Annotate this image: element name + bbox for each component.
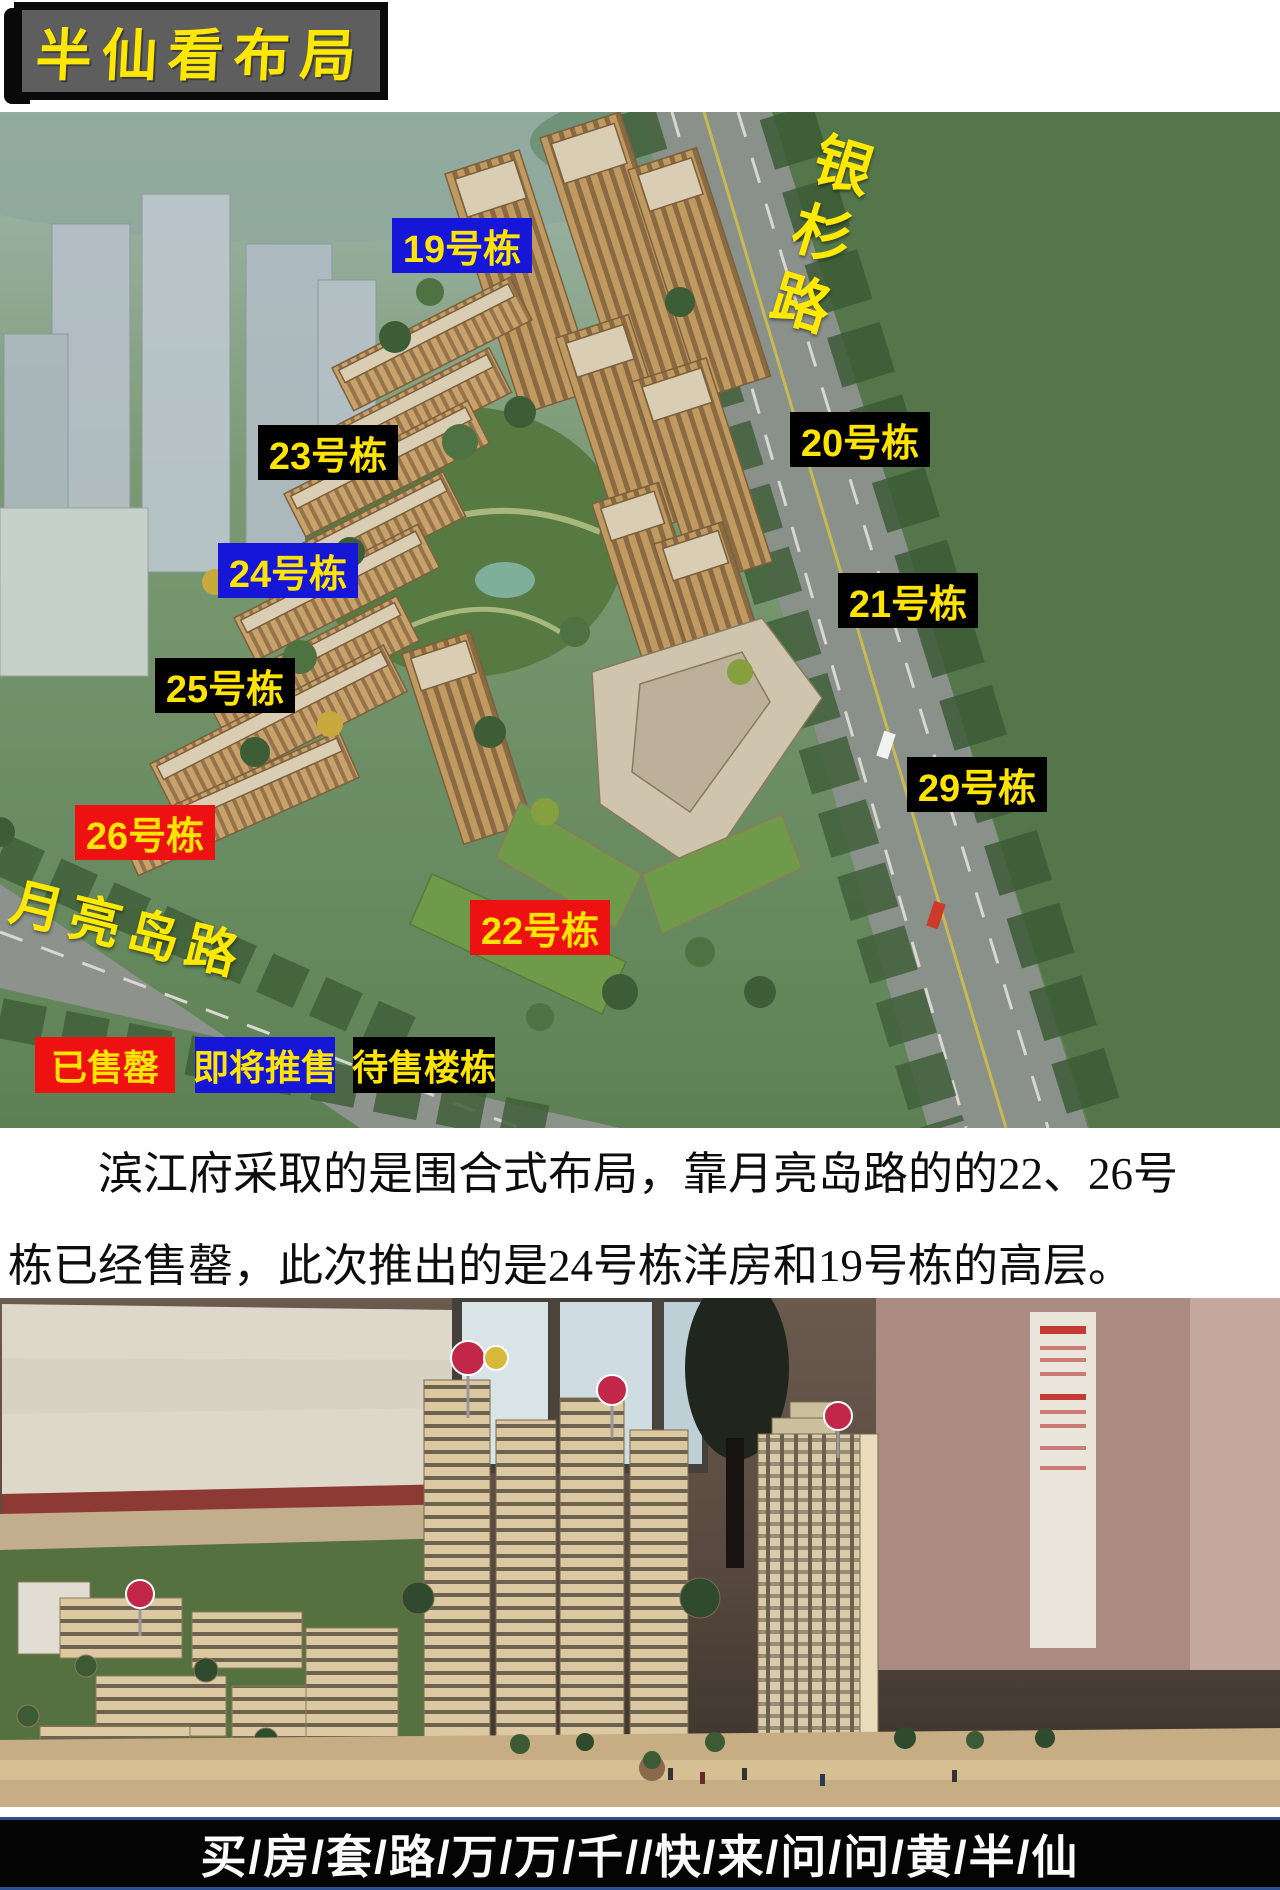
projection-screen	[0, 1304, 460, 1558]
model-photo-render	[0, 1298, 1280, 1807]
page-title: 半仙看布局	[34, 11, 368, 92]
building-label-22: 22号栋	[470, 900, 610, 955]
building-label-26: 26号栋	[75, 805, 215, 860]
title-banner: 半仙看布局	[4, 2, 390, 102]
page: 半仙看布局	[0, 0, 1280, 1890]
building-label-19: 19号栋	[392, 218, 532, 273]
description-line-2: 栋已经售罄，此次推出的是24号栋洋房和19号栋的高层。	[8, 1244, 1272, 1289]
description-text: 滨江府采取的是围合式布局，靠月亮岛路的的22、26号 栋已经售罄，此次推出的是2…	[0, 1128, 1280, 1298]
legend-for-sale: 待售楼栋	[353, 1037, 495, 1093]
site-plan-image: 19号栋 23号栋 20号栋 24号栋 21号栋 25号栋 29号栋 26号栋 …	[0, 112, 1280, 1128]
legend: 已售罄 即将推售 待售楼栋	[35, 1037, 495, 1093]
legend-sold-out: 已售罄	[35, 1037, 175, 1093]
model-photo	[0, 1298, 1280, 1807]
building-label-20: 20号栋	[790, 412, 930, 467]
banner-plate: 半仙看布局	[14, 2, 388, 100]
price-poster-wall	[876, 1298, 1280, 1670]
building-label-29: 29号栋	[907, 757, 1047, 812]
building-label-23: 23号栋	[258, 425, 398, 480]
model-esplanade	[0, 1727, 1280, 1807]
model-office-tower	[758, 1402, 878, 1772]
footer-slogan: 买/房/套/路/万/万/千//快/来/问/问/黄/半/仙	[201, 1821, 1080, 1887]
building-label-21: 21号栋	[838, 573, 978, 628]
description-line-1: 滨江府采取的是围合式布局，靠月亮岛路的的22、26号	[8, 1152, 1272, 1197]
footer-banner: 买/房/套/路/万/万/千//快/来/问/问/黄/半/仙	[0, 1817, 1280, 1890]
building-label-24: 24号栋	[218, 543, 358, 598]
legend-upcoming: 即将推售	[195, 1037, 335, 1093]
model-towers	[402, 1380, 720, 1772]
building-label-25: 25号栋	[155, 658, 295, 713]
